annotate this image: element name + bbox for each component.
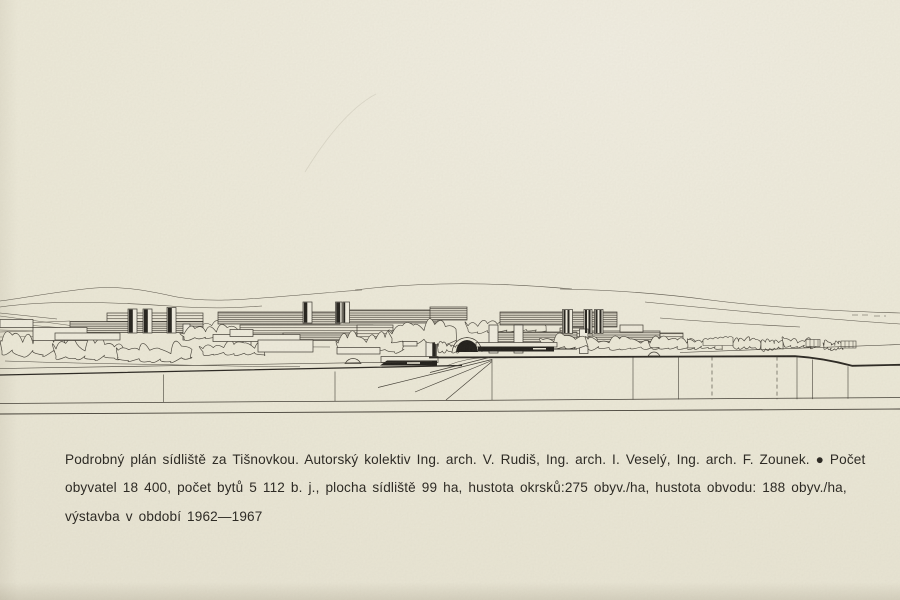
caption-line-2: obyvatel 18 400, počet bytů 5 112 b. j.,… (65, 474, 815, 502)
caption-line-1: Podrobný plán sídliště za Tišnovkou. Aut… (65, 446, 815, 474)
photo-caption: Podrobný plán sídliště za Tišnovkou. Aut… (65, 446, 815, 531)
book-page: Podrobný plán sídliště za Tišnovkou. Aut… (0, 0, 900, 600)
caption-line-3: výstavba v období 1962—1967 (65, 503, 815, 531)
